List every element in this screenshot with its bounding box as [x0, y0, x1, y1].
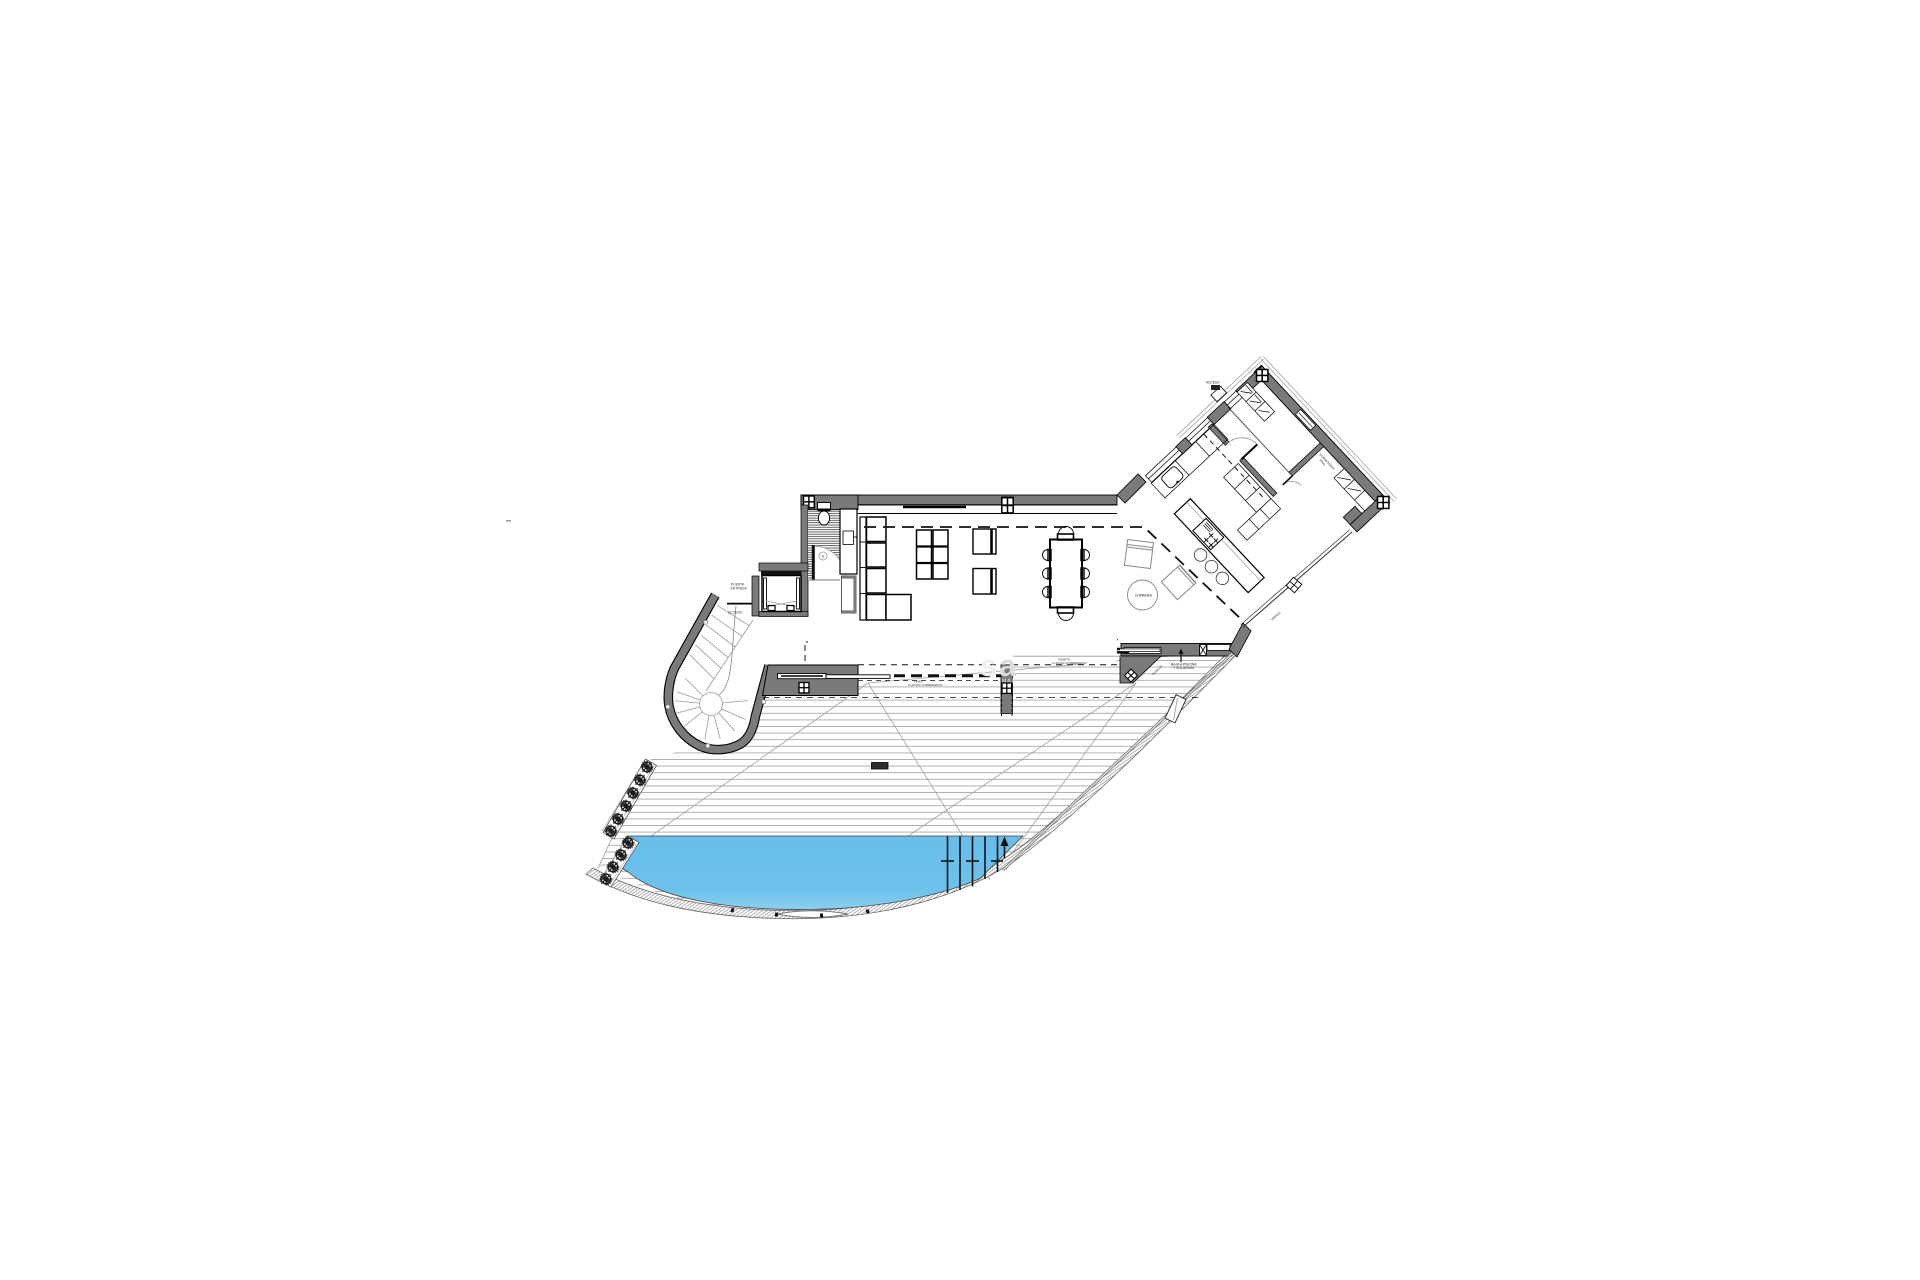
svg-text:CHIMENEA: CHIMENEA: [1135, 594, 1153, 598]
svg-text:M A R: M A R: [1002, 679, 1016, 685]
svg-text:Y SOLARIUM: Y SOLARIUM: [1173, 666, 1194, 670]
svg-text:ACCESO: ACCESO: [1206, 381, 1220, 385]
svg-text:ENTRADA: ENTRADA: [731, 586, 748, 590]
svg-text:ACCESO: ACCESO: [728, 611, 743, 615]
svg-text:2 HOJAS CORREDERAS: 2 HOJAS CORREDERAS: [908, 683, 943, 687]
svg-text:s: s: [980, 648, 997, 683]
svg-text:2 HOJAS CORREDERAS: 2 HOJAS CORREDERAS: [1052, 661, 1087, 665]
